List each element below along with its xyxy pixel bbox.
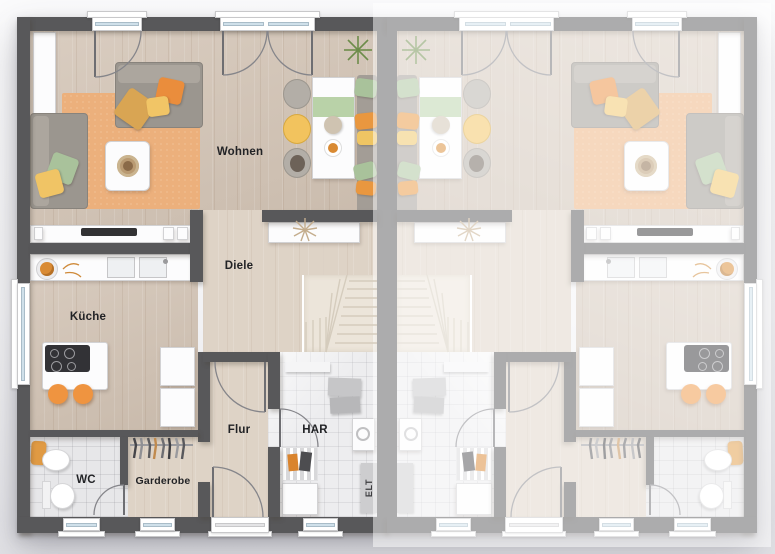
right-sink-1	[639, 257, 667, 278]
right-sideboard-deco-1	[731, 227, 740, 240]
fruit-plate-fruits	[328, 143, 338, 153]
wall-har-left-lower	[268, 447, 280, 517]
wall-wc-top	[30, 430, 198, 437]
right-wall-wc-garderobe	[646, 437, 654, 485]
right-dining-chair-2	[463, 114, 491, 144]
floor-garderobe	[120, 430, 203, 517]
right-window-top-double-glass-right	[465, 22, 506, 26]
fridge	[160, 347, 195, 386]
wall-wc-garderobe	[120, 437, 128, 485]
right-burner-3	[712, 361, 723, 372]
right-window-sill-garderobe	[594, 531, 639, 537]
window-sill-wc	[58, 531, 105, 537]
toilet-bowl	[50, 483, 75, 509]
right-flower-vase	[432, 116, 450, 134]
wall-exterior-top	[17, 17, 387, 31]
right-har-shelf	[444, 362, 489, 372]
burner-1	[50, 349, 59, 358]
right-wall-party	[387, 17, 397, 533]
right-window-sill-har	[431, 531, 476, 537]
right-sideboard-deco-3	[586, 227, 597, 240]
tv	[81, 228, 137, 236]
right-hall-shelf	[414, 222, 506, 243]
right-tv	[637, 228, 693, 236]
right-fruit-plate-fruits	[436, 143, 446, 153]
window-garderobe-glass	[143, 523, 172, 527]
faucet	[163, 259, 168, 264]
window-top-double-glass-left	[223, 22, 264, 26]
right-faucet	[606, 259, 611, 264]
bench-pillow-yellow	[357, 131, 377, 145]
washing-machine-door	[356, 427, 370, 441]
window-sill-har	[298, 531, 343, 537]
right-wall-har-left-lower	[494, 447, 506, 517]
right-window-garderobe-glass	[602, 523, 631, 527]
right-stool-2	[681, 384, 701, 404]
right-rack-clothes-dark	[462, 451, 475, 471]
right-har-box-2	[414, 396, 445, 414]
stool-2	[73, 384, 93, 404]
right-window-sill-wc	[669, 531, 716, 537]
right-wall-wc-top	[576, 430, 744, 437]
sideboard-deco-3	[177, 227, 188, 240]
window-har-glass	[306, 523, 335, 527]
right-dining-chair-3-cushion	[469, 155, 484, 172]
wall-flur-left-lower	[198, 482, 210, 517]
burner-2	[64, 348, 75, 359]
right-wc-sink	[704, 449, 732, 471]
bench-pillow-orange	[354, 112, 378, 130]
right-har-cabinet	[456, 483, 492, 515]
wall-diele-kueche	[190, 210, 203, 282]
right-burner-1	[715, 349, 724, 358]
right-staircase	[397, 275, 472, 352]
har-cabinet	[282, 483, 318, 515]
right-har-box-1	[413, 377, 447, 396]
bench-pillow-green	[354, 78, 378, 99]
sideboard-deco-2	[163, 227, 174, 240]
burner-3	[51, 361, 62, 372]
label-har: HAR	[302, 424, 328, 436]
label-flur: Flur	[228, 424, 251, 436]
flower-vase	[324, 116, 342, 134]
right-window-har-glass	[439, 523, 468, 527]
dining-chair-3-cushion	[290, 155, 305, 172]
right-wall-kitchen	[581, 243, 744, 254]
label-diele: Diele	[225, 260, 254, 272]
kitchen-tall-cabinet	[160, 388, 195, 427]
window-left-glass	[21, 287, 25, 381]
label-wohnen: Wohnen	[217, 146, 263, 158]
sideboard-deco-1	[34, 227, 43, 240]
right-fridge	[579, 347, 614, 386]
floor-plan: ELT	[0, 0, 775, 554]
right-washing-machine-door	[404, 427, 418, 441]
dining-chair-2	[283, 114, 311, 144]
right-bench-pillow-yellow	[397, 131, 417, 145]
fruit-bowl-oranges	[40, 262, 54, 276]
right-wall-har-left-upper	[494, 352, 506, 409]
wc-sink	[42, 449, 70, 471]
window-wc-glass	[66, 523, 97, 527]
right-kitchen-tall-cabinet	[579, 388, 614, 427]
har-box-2	[330, 396, 361, 414]
right-wall-diele-kueche	[571, 210, 584, 282]
right-window-sill-left	[756, 279, 763, 389]
wall-flur-top	[203, 352, 268, 362]
wall-diele-top	[262, 210, 377, 222]
window-top-double-glass-right	[268, 22, 309, 26]
wall-party	[377, 17, 387, 533]
table-runner	[313, 97, 354, 117]
wall-har-left-upper	[268, 352, 280, 409]
har-box-1	[328, 377, 362, 396]
right-wall-flur-left-lower	[564, 482, 576, 517]
right-toilet-bowl	[699, 483, 724, 509]
right-window-top-double-glass-left	[510, 22, 551, 26]
right-bench-pillow-green	[396, 78, 420, 99]
elt-panel: ELT	[361, 463, 377, 513]
right-window-wc-glass	[677, 523, 708, 527]
right-floor-garderobe	[571, 430, 654, 517]
right-window-left-glass	[749, 287, 753, 381]
right-fruit-bowl-oranges	[720, 262, 734, 276]
right-bench-pillow-orange-2	[397, 180, 418, 196]
right-toilet-tank	[723, 481, 732, 509]
label-kueche: Küche	[70, 311, 106, 323]
unit-left: ELT	[17, 17, 387, 533]
right-wall-flur-top	[506, 352, 571, 362]
label-garderobe: Garderobe	[136, 475, 191, 487]
rack-clothes-orange	[287, 454, 298, 472]
elt-label: ELT	[364, 479, 374, 497]
right-rack-clothes-orange	[475, 454, 486, 472]
staircase	[302, 275, 377, 352]
right-wall-exterior-top	[387, 17, 757, 31]
rack-clothes-dark	[299, 451, 312, 471]
right-entrance-door-panel	[509, 523, 559, 527]
wall-exterior-left	[17, 17, 30, 533]
right-wall-exterior-left	[744, 17, 757, 533]
right-sideboard-deco-2	[600, 227, 611, 240]
right-window-top-1-glass	[635, 22, 679, 26]
right-table-runner	[420, 97, 461, 117]
right-pillow-yellow	[604, 96, 628, 118]
burner-4	[67, 362, 76, 371]
table-plant	[123, 161, 133, 171]
wall-flur-left-upper	[198, 352, 210, 442]
right-burner-4	[698, 362, 707, 371]
unit-right-mirrored	[387, 17, 757, 533]
right-bench-pillow-orange	[396, 112, 420, 130]
bench-pillow-orange-2	[355, 180, 376, 196]
right-wall-flur-left-upper	[564, 352, 576, 442]
label-wc: WC	[76, 474, 96, 486]
stool-1	[48, 384, 68, 404]
right-burner-2	[699, 348, 710, 359]
wall-kitchen	[30, 243, 193, 254]
right-table-plant	[641, 161, 651, 171]
hall-shelf	[268, 222, 360, 243]
dining-chair-1	[283, 79, 311, 109]
right-sink-2	[607, 257, 635, 278]
har-shelf	[285, 362, 330, 372]
pillow-yellow	[146, 96, 170, 118]
entrance-door-panel	[215, 523, 265, 527]
sink-1	[107, 257, 135, 278]
right-stool-1	[706, 384, 726, 404]
window-sill-garderobe	[135, 531, 180, 537]
right-wall-diele-top	[397, 210, 512, 222]
right-elt-panel	[397, 463, 413, 513]
page-background: { "document": { "kind": "residential flo…	[0, 0, 775, 554]
right-dining-chair-1	[463, 79, 491, 109]
window-top-1-glass	[95, 22, 139, 26]
